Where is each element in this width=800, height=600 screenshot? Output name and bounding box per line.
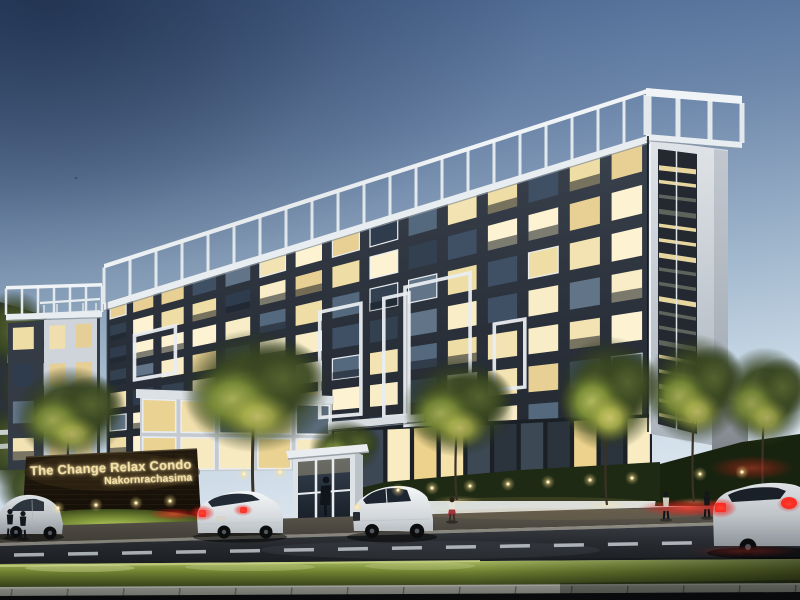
uplight xyxy=(547,481,550,484)
pedestrian-shadow xyxy=(446,520,458,524)
uplight xyxy=(243,473,246,476)
pedestrian-torso xyxy=(20,517,26,526)
pedestrian-leg xyxy=(450,514,451,521)
uplight xyxy=(699,473,702,476)
taillight-glow xyxy=(777,496,800,512)
pedestrian-leg xyxy=(705,509,706,517)
pedestrian-leg xyxy=(454,514,455,521)
condo-dusk-rendering: The Change Relax Condo Nakornrachasima xyxy=(0,0,800,600)
pedestrian-leg xyxy=(25,530,26,538)
car-shadow xyxy=(193,532,287,543)
pedestrian-torso xyxy=(663,498,669,507)
uplight xyxy=(279,471,282,474)
car-hub xyxy=(222,530,226,534)
license-plate xyxy=(216,516,226,521)
tree-ground-glow xyxy=(433,496,483,505)
window xyxy=(143,399,176,432)
pedestrian-torso xyxy=(7,515,13,525)
car-hub xyxy=(264,530,268,534)
taillight-glow xyxy=(233,504,253,516)
taillight-hedge-glow xyxy=(710,456,794,480)
window xyxy=(570,277,600,310)
pedestrian-shadow xyxy=(701,516,713,520)
grass-glow xyxy=(25,564,135,572)
tree-canopy xyxy=(744,397,790,439)
window xyxy=(529,324,559,354)
tree-canopy xyxy=(44,414,100,454)
window xyxy=(332,386,359,410)
pedestrian-leg xyxy=(8,529,9,537)
pedestrian-head xyxy=(663,492,668,497)
pedestrian-leg xyxy=(21,530,22,538)
pedestrian-leg xyxy=(668,511,669,519)
grass-glow xyxy=(185,563,315,571)
tree-ground-glow xyxy=(585,501,632,510)
tree-canopy xyxy=(672,389,722,435)
tree-canopy xyxy=(584,394,636,443)
car-hub xyxy=(14,530,18,534)
window xyxy=(529,363,559,392)
uplight xyxy=(469,485,472,488)
window xyxy=(488,330,517,359)
tree-canopy xyxy=(432,407,488,449)
guard-head xyxy=(323,477,330,484)
pedestrian-head xyxy=(704,491,709,496)
uplight xyxy=(95,504,98,507)
window xyxy=(76,323,92,348)
pedestrian-head xyxy=(449,497,454,502)
pedestrian-head xyxy=(20,511,25,516)
pedestrian-skirt xyxy=(448,510,456,516)
pedestrian-shadow xyxy=(660,518,672,522)
uplight xyxy=(631,477,634,480)
uplight xyxy=(589,479,592,482)
car-hub xyxy=(415,529,420,534)
pedestrian-leg xyxy=(664,511,665,519)
uplight xyxy=(57,507,60,510)
uplight xyxy=(169,500,172,503)
headlight xyxy=(355,505,359,509)
uplight xyxy=(431,487,434,490)
uplight xyxy=(397,489,400,492)
pedestrian-head xyxy=(7,509,12,514)
car-hub xyxy=(48,531,52,535)
window xyxy=(13,327,34,350)
pedestrian-torso xyxy=(449,503,455,511)
window xyxy=(49,325,65,350)
pedestrian-shadow xyxy=(17,537,29,541)
grass-glow xyxy=(365,562,475,570)
pedestrian-leg xyxy=(12,529,13,537)
pedestrian-leg xyxy=(709,509,710,517)
pedestrian-torso xyxy=(704,497,710,506)
car-grille xyxy=(353,512,360,521)
uplight xyxy=(507,483,510,486)
bird xyxy=(75,177,77,179)
scene-canvas xyxy=(0,0,800,600)
pedestrian-shadow xyxy=(4,536,16,540)
uplight xyxy=(135,502,138,505)
road-red-reflection xyxy=(690,545,800,557)
car-hub xyxy=(370,529,375,534)
tree-canopy xyxy=(221,391,295,443)
taillight-glow xyxy=(189,505,215,521)
uplight xyxy=(741,471,744,474)
